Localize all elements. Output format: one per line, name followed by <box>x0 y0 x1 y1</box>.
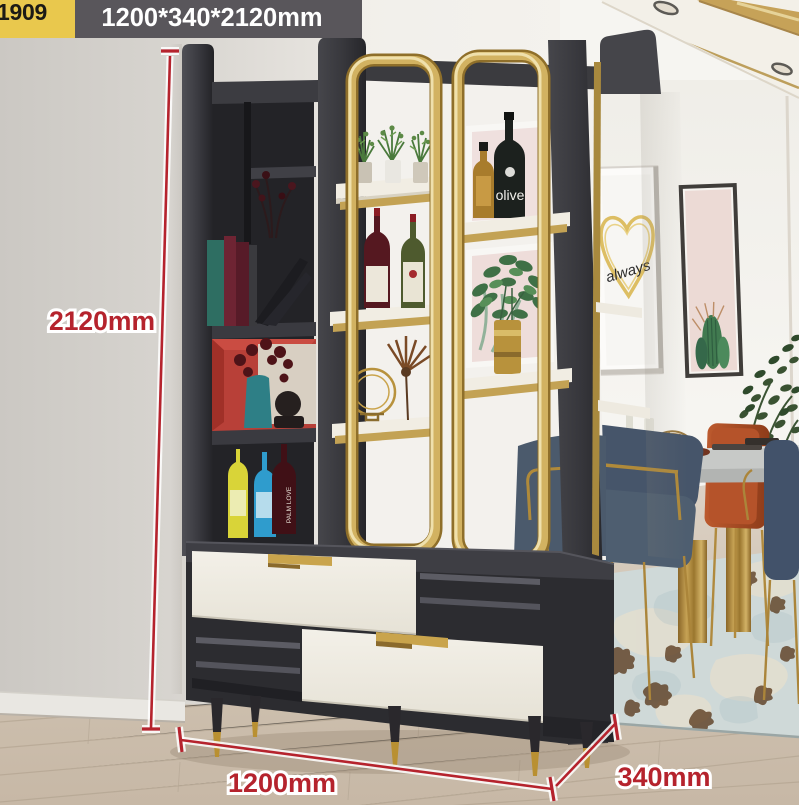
svg-text:PALM LOVE: PALM LOVE <box>286 486 293 523</box>
svg-text:1909: 1909 <box>0 0 47 25</box>
svg-text:1200*340*2120mm: 1200*340*2120mm <box>101 4 322 32</box>
svg-text:2120mm: 2120mm <box>49 306 155 336</box>
svg-text:olive: olive <box>496 187 525 203</box>
svg-text:1200mm: 1200mm <box>228 768 336 798</box>
svg-text:340mm: 340mm <box>617 762 710 792</box>
